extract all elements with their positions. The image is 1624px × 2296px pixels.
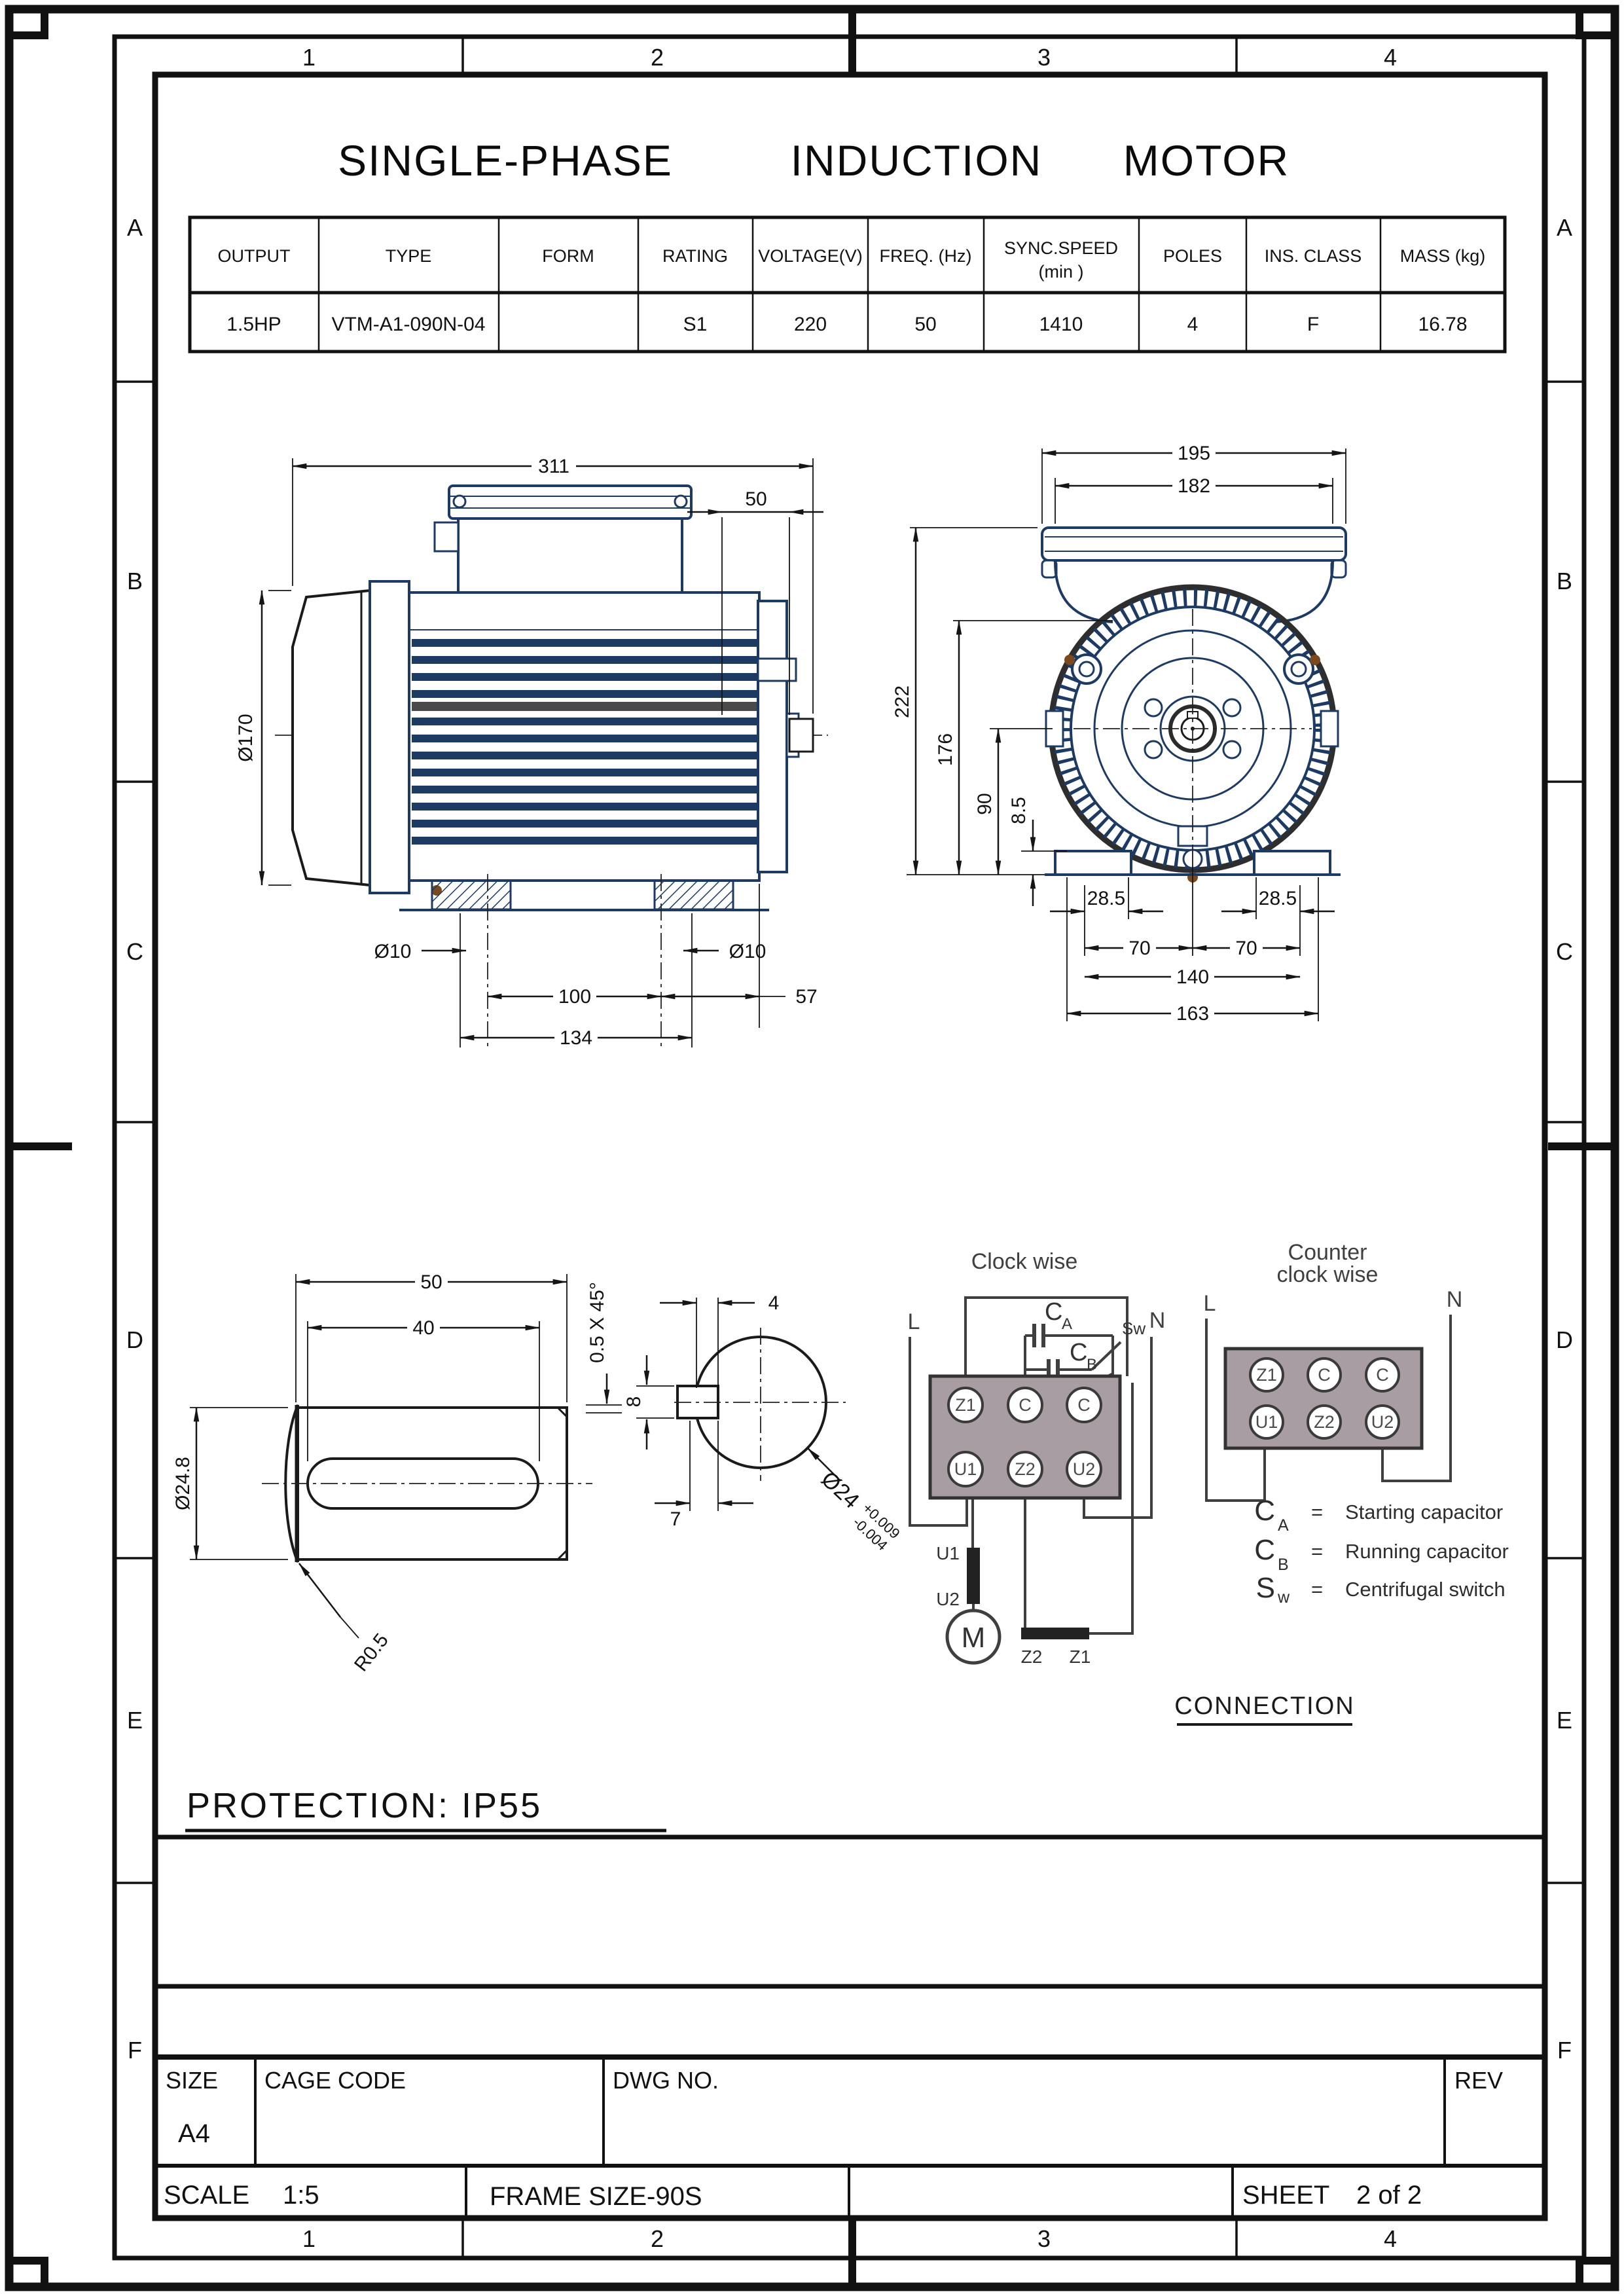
- legend-eq-3: =: [1311, 1578, 1323, 1601]
- dim-hole-span: 140: [1176, 966, 1209, 988]
- zone-col: 4: [1384, 2225, 1397, 2252]
- main-winding: [967, 1548, 980, 1604]
- col-header-rating: RATING: [662, 246, 728, 266]
- zone-row: A: [1557, 214, 1572, 241]
- value-insclass: F: [1307, 314, 1319, 335]
- motor-end-view: 195 182 222 176 90 8.5: [892, 441, 1346, 1025]
- dim-shaft-height: 90: [974, 793, 996, 814]
- line-label: L: [1204, 1291, 1216, 1316]
- drawing-canvas: 1 2 3 4 1 2 3 4 A B C D E F A B C D E F …: [0, 0, 1624, 2296]
- rev-label: REV: [1454, 2067, 1503, 2094]
- screw-icon: [1064, 655, 1075, 665]
- cap-a-sub: A: [1062, 1315, 1072, 1333]
- terminal-z1: Z1: [1256, 1365, 1277, 1385]
- legend-sub-1: A: [1278, 1516, 1289, 1535]
- wiring-clockwise: Clock wise L N C A C B Sw Z1 C C U1 Z2 U…: [908, 1249, 1166, 1667]
- dim-foot-hole-span: 100: [558, 986, 591, 1008]
- zone-row: E: [127, 1707, 143, 1734]
- terminal-u2: U2: [1371, 1412, 1394, 1432]
- col-header-freq: FREQ. (Hz): [880, 246, 972, 266]
- zone-row: C: [1556, 938, 1573, 965]
- value-freq: 50: [914, 314, 936, 335]
- wiring-legend: C A = Starting capacitor C B = Running c…: [1174, 1495, 1509, 1724]
- legend-label-3: Centrifugal switch: [1345, 1578, 1506, 1601]
- terminal-c2: C: [1077, 1395, 1091, 1415]
- dim-section-dia-group: Ø24 +0.009 -0.004: [812, 1466, 903, 1555]
- col-header-poles: POLES: [1163, 246, 1222, 266]
- foot: [655, 881, 733, 909]
- legend-sub-2: B: [1278, 1556, 1289, 1574]
- zone-row: B: [1557, 568, 1572, 594]
- dim-half-span-left: 70: [1128, 938, 1150, 959]
- col-header-sync: SYNC.SPEED: [1004, 238, 1118, 258]
- dim-foot-thickness: 8.5: [1008, 797, 1030, 824]
- value-type: VTM-A1-090N-04: [331, 314, 485, 335]
- dim-box-width: 182: [1178, 475, 1210, 497]
- dim-key-width: 4: [768, 1292, 780, 1314]
- col-header-insclass: INS. CLASS: [1265, 246, 1362, 266]
- dim-shaft-dia: Ø24.8: [172, 1457, 194, 1510]
- dim-key-length: 40: [412, 1317, 434, 1339]
- zone-row: E: [1557, 1707, 1572, 1734]
- bolt-boss: [1072, 655, 1101, 683]
- dim-overall-length: 311: [538, 456, 569, 477]
- legend-eq-1: =: [1311, 1501, 1323, 1523]
- size-label: SIZE: [166, 2067, 218, 2094]
- legend-sym-3: S: [1256, 1572, 1275, 1604]
- zone-row: D: [126, 1326, 143, 1353]
- dim-foot-span: 163: [1176, 1003, 1209, 1025]
- col-header-form: FORM: [542, 246, 594, 266]
- terminal-u2: U2: [1073, 1459, 1096, 1479]
- zone-row: B: [127, 568, 143, 594]
- cage-code-label: CAGE CODE: [264, 2067, 406, 2094]
- wiring-counter-clockwise: Counter clock wise L N Z1 C C U1 Z2 U2: [1204, 1240, 1463, 1501]
- dim-foot-hole-right: Ø10: [729, 941, 767, 962]
- dim-hole-edge-left: 28.5: [1087, 888, 1125, 909]
- dim-foot-length: 134: [560, 1027, 592, 1049]
- sheet-value: 2 of 2: [1356, 2181, 1422, 2210]
- spec-table: OUTPUT TYPE FORM RATING VOLTAGE(V) FREQ.…: [190, 217, 1505, 352]
- zone-row: F: [1557, 2037, 1572, 2064]
- bolt-boss: [1284, 655, 1313, 683]
- protection-note: PROTECTION: IP55: [185, 1786, 666, 1831]
- cw-title: Clock wise: [971, 1249, 1077, 1274]
- dim-shaft-ext-length: 50: [420, 1271, 442, 1293]
- dim-section-dia: Ø24: [816, 1467, 864, 1514]
- u2-label: U2: [936, 1589, 960, 1609]
- dim-shaft-length: 50: [745, 488, 767, 510]
- dim-hole-edge-right: 28.5: [1259, 888, 1297, 909]
- aux-winding: [1021, 1628, 1089, 1639]
- zone-row: F: [128, 2037, 142, 2064]
- terminal-box-lid: [449, 486, 691, 519]
- lifting-lug: [758, 659, 796, 681]
- shaft-cross-section: 4 8 7 Ø24 +0.009 -0.004: [623, 1292, 903, 1554]
- zone-col: 3: [1038, 44, 1051, 71]
- value-mass: 16.78: [1418, 314, 1467, 335]
- switch-label: Sw: [1122, 1319, 1146, 1338]
- value-sync: 1410: [1039, 314, 1083, 335]
- terminal-z2: Z2: [1314, 1412, 1335, 1432]
- zone-row: D: [1556, 1326, 1573, 1353]
- terminal-u1: U1: [1255, 1412, 1278, 1432]
- col-header-type: TYPE: [386, 246, 432, 266]
- zone-row: A: [127, 214, 143, 241]
- foot: [1055, 851, 1131, 875]
- value-poles: 4: [1187, 314, 1199, 335]
- title-part-2: INDUCTION: [791, 136, 1043, 185]
- legend-label-1: Starting capacitor: [1345, 1501, 1503, 1523]
- size-value: A4: [178, 2119, 210, 2148]
- motor-letter: M: [962, 1622, 986, 1654]
- dim-center-height-top: 176: [935, 733, 956, 766]
- legend-label-2: Running capacitor: [1345, 1540, 1509, 1563]
- zone-labels: 1 2 3 4 1 2 3 4 A B C D E F A B C D E F: [126, 44, 1573, 2252]
- dim-height: 222: [892, 685, 913, 718]
- end-bracket: [758, 601, 787, 872]
- terminal-c2: C: [1376, 1365, 1389, 1385]
- sheet-label: SHEET: [1242, 2181, 1329, 2210]
- scale-value: 1:5: [283, 2181, 319, 2210]
- terminal-z1: Z1: [955, 1395, 976, 1415]
- drawing-sheet: 1 2 3 4 1 2 3 4 A B C D E F A B C D E F …: [0, 0, 1624, 2296]
- title-part-1: SINGLE-PHASE: [338, 136, 673, 185]
- terminal-c1: C: [1019, 1395, 1032, 1415]
- dim-shaft-offset: 57: [795, 986, 817, 1008]
- col-header-output: OUTPUT: [218, 246, 291, 266]
- shaft-detail: 50 40 Ø24.8 R0.5 0.5 X 45°: [172, 1270, 622, 1675]
- protection-text: PROTECTION: IP55: [187, 1786, 542, 1825]
- dim-key-height: 8: [623, 1396, 645, 1408]
- fan-cover: [293, 591, 370, 885]
- connection-heading: CONNECTION: [1174, 1692, 1354, 1720]
- neutral-label: N: [1447, 1287, 1463, 1312]
- col-header-sync-unit: (min ): [1039, 262, 1084, 282]
- zone-col: 4: [1384, 44, 1397, 71]
- ccw-title-2: clock wise: [1277, 1262, 1379, 1287]
- col-header-voltage: VOLTAGE(V): [758, 246, 863, 266]
- dim-key-depth: 7: [670, 1508, 681, 1530]
- title-block: SIZE A4 CAGE CODE DWG NO. REV SCALE 1:5 …: [155, 2057, 1545, 2218]
- zone-col: 2: [651, 2225, 664, 2252]
- dim-fan-cover-dia: Ø170: [235, 714, 257, 761]
- zone-col: 1: [302, 44, 316, 71]
- z2-label: Z2: [1021, 1647, 1043, 1667]
- dim-frame-width: 195: [1178, 443, 1210, 464]
- dwg-no-label: DWG NO.: [613, 2067, 719, 2094]
- lid-bolt-icon: [454, 496, 465, 507]
- motor-side-view: 311 50 Ø170 Ø10 Ø10 100 134 57: [235, 454, 828, 1049]
- lid-bolt-icon: [675, 496, 687, 507]
- cable-gland: [435, 522, 458, 551]
- terminal-box-top: [1042, 528, 1346, 560]
- foot: [432, 881, 511, 909]
- zone-col: 2: [651, 44, 664, 71]
- title-part-3: MOTOR: [1123, 136, 1290, 185]
- dim-chamfer: 0.5 X 45°: [586, 1282, 608, 1363]
- zone-col: 3: [1038, 2225, 1051, 2252]
- value-output: 1.5HP: [226, 314, 281, 335]
- legend-sym-2: C: [1254, 1534, 1275, 1566]
- drawing-title: SINGLE-PHASE INDUCTION MOTOR: [338, 136, 1290, 185]
- foot: [1254, 851, 1330, 875]
- cap-b-symbol: C: [1070, 1339, 1087, 1366]
- legend-eq-2: =: [1311, 1540, 1323, 1563]
- shaft: [789, 719, 813, 752]
- cap-a-symbol: C: [1045, 1298, 1062, 1326]
- clamp-band: [370, 581, 409, 893]
- z1-label: Z1: [1070, 1647, 1091, 1667]
- cap-b-sub: B: [1087, 1356, 1097, 1374]
- dim-half-span-right: 70: [1235, 938, 1257, 959]
- line-label: L: [908, 1309, 920, 1334]
- terminal-c1: C: [1318, 1365, 1331, 1385]
- col-header-mass: MASS (kg): [1400, 246, 1486, 266]
- screw-icon: [1310, 655, 1320, 665]
- terminal-z2: Z2: [1015, 1459, 1036, 1479]
- terminal-u1: U1: [954, 1459, 977, 1479]
- neutral-label: N: [1149, 1308, 1166, 1333]
- scale-label: SCALE: [164, 2181, 249, 2210]
- zone-col: 1: [302, 2225, 316, 2252]
- value-rating: S1: [683, 314, 708, 335]
- value-voltage: 220: [794, 314, 827, 335]
- zone-dividers: [115, 37, 1584, 2258]
- ccw-title-1: Counter: [1288, 1240, 1367, 1265]
- u1-label: U1: [936, 1543, 960, 1563]
- dim-foot-hole-left: Ø10: [374, 941, 412, 962]
- legend-sym-1: C: [1254, 1495, 1275, 1527]
- zone-row: C: [126, 938, 143, 965]
- legend-sub-3: w: [1277, 1588, 1290, 1607]
- frame-size-label: FRAME SIZE-90S: [490, 2182, 702, 2211]
